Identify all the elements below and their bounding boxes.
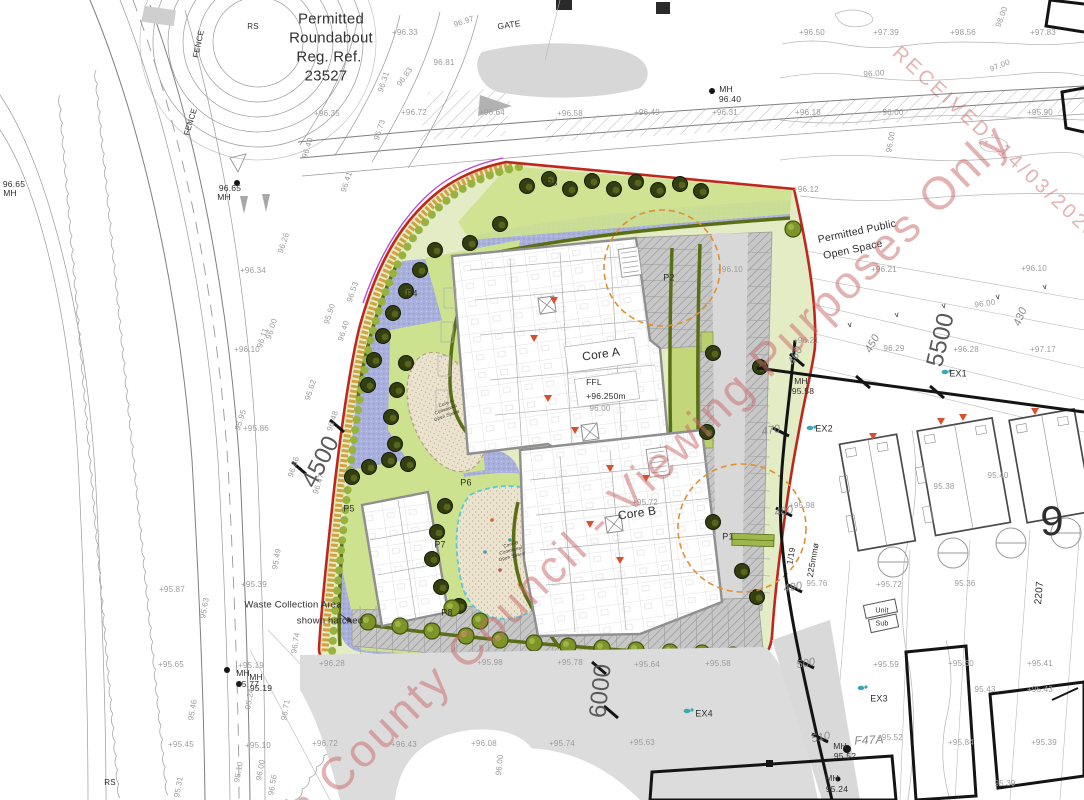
site-plan-page: PermittedRoundaboutReg. Ref.23527GATEFEN… xyxy=(0,0,1084,800)
crossing-p1 xyxy=(732,533,774,546)
site-plan-drawing xyxy=(0,0,1084,800)
building-core-a xyxy=(436,238,668,454)
substation-box xyxy=(863,599,900,633)
building-core-b xyxy=(520,430,722,636)
